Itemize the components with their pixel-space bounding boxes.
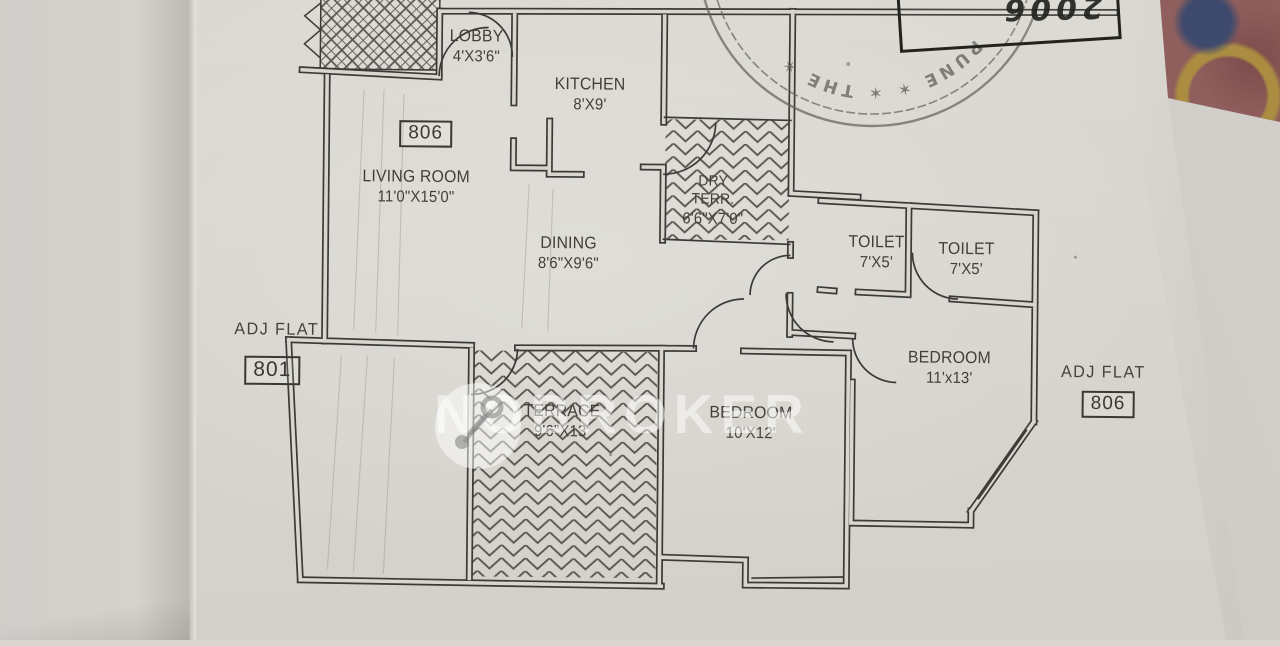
room-name: TOILET <box>848 232 904 253</box>
room-label-living: LIVING ROOM 11'0"X15'0" <box>362 166 470 207</box>
room-name: KITCHEN <box>555 74 626 95</box>
room-size: 4'X3'6" <box>449 47 503 67</box>
walls-outer <box>286 5 1115 591</box>
room-size: 11'x13' <box>908 368 991 388</box>
room-name: DINING <box>538 233 599 254</box>
room-label-dining: DINING 8'6"X9'6" <box>538 233 599 274</box>
room-label-terrace: TERRACE 9'6"X13' <box>523 401 600 442</box>
room-label-bedroom-middle: BEDROOM 10'X12' <box>709 403 792 444</box>
room-label-bedroom-right: BEDROOM 11'x13' <box>908 347 991 388</box>
floorplan: LOBBY 4'X3'6" KITCHEN 8'X9' 806 LIVING R… <box>0 0 1280 646</box>
room-size: 8'6"X9'6" <box>538 254 599 274</box>
room-size: 7'X5' <box>848 253 904 273</box>
room-name: BEDROOM <box>709 403 792 425</box>
room-label-toilet-2: TOILET 7'X5' <box>938 239 995 280</box>
unit-number-box: 806 <box>399 120 452 148</box>
room-label-dry-terrace: DRY TERR. 6'6"X7'0" <box>677 172 748 229</box>
room-name: DRY TERR. <box>678 172 749 209</box>
room-name: TERRACE <box>523 401 600 422</box>
room-name: TOILET <box>938 239 994 260</box>
room-size: 7'X5' <box>938 259 994 279</box>
break-line <box>304 3 321 58</box>
room-size: 10'X12' <box>709 423 792 443</box>
room-name: LOBBY <box>450 26 504 47</box>
room-label-toilet-1: TOILET 7'X5' <box>848 232 905 273</box>
room-name: LIVING ROOM <box>362 166 470 188</box>
room-size: 6'6"X7'0" <box>677 209 748 229</box>
room-label-kitchen: KITCHEN 8'X9' <box>554 74 625 115</box>
adj-flat-right-label: ADJ FLAT <box>1061 362 1146 383</box>
room-size: 8'X9' <box>554 95 625 115</box>
adj-flat-left-number: 801 <box>244 356 300 386</box>
room-name: BEDROOM <box>908 347 991 369</box>
adj-flat-right-number: 806 <box>1082 391 1135 419</box>
room-size: 11'0"X15'0" <box>362 187 470 208</box>
room-label-lobby: LOBBY 4'X3'6" <box>449 26 503 67</box>
floorplan-photo: { "plan": { "unit_number": "806", "rooms… <box>0 0 1280 640</box>
adj-flat-left-label: ADJ FLAT <box>234 319 319 340</box>
room-size: 9'6"X13' <box>523 421 600 441</box>
floorplan-drawing <box>0 0 1280 646</box>
staircase-hatch <box>320 0 440 70</box>
walls-inner <box>286 5 1115 591</box>
handwritten-number: 2006 <box>997 0 1106 27</box>
